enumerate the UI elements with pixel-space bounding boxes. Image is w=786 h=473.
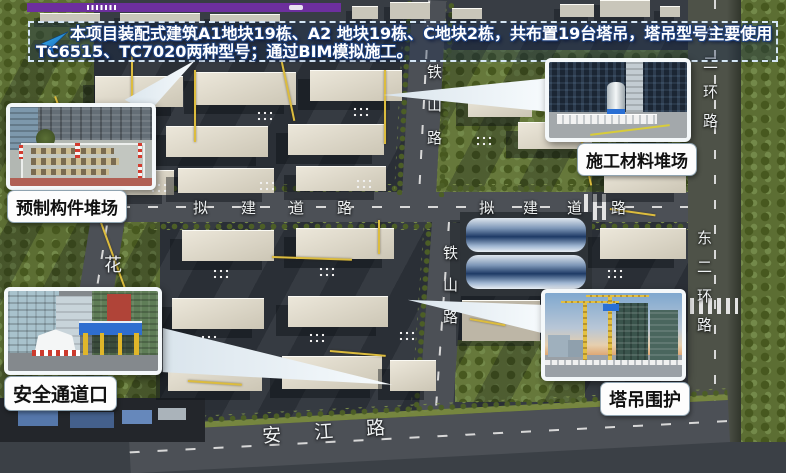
crane-leader-line [384,70,386,144]
tree-shadow-edge [727,0,741,442]
building-footprint-dots [308,332,326,344]
road-label-proposed-east: 拟建道路 [479,197,655,218]
project-description-banner: 本项目装配式建筑A1地块19栋、A2 地块19栋、C地块2栋，共布置19台塔吊，… [28,21,778,62]
building-footprint-dots [258,180,276,192]
crane-leader-line [378,220,380,254]
callout-label-safety-passage: 安全通道口 [4,376,117,411]
map-building [288,296,388,327]
photo-detail [545,360,682,365]
building-footprint-dots [355,178,373,190]
photo-detail [548,335,570,357]
photo-detail [650,310,677,362]
photo-detail [83,333,88,355]
barrel-roof [466,218,586,252]
building-roof [158,408,186,420]
photo-safety-passage [4,287,162,375]
photo-detail [626,62,643,112]
hillside-east [741,0,786,442]
building-footprint-dots [398,330,416,342]
map-building [288,124,384,155]
photo-detail [10,178,152,186]
road-label-tieshan-lower: 铁山路 [440,245,461,341]
callout-label-material-yard: 施工材料堆场 [577,143,697,176]
road-label-hua: 花 [104,251,122,277]
paper-plane-arrow-icon [40,29,70,55]
map-building [196,72,296,105]
photo-prefab-yard [6,103,156,190]
callout-label-prefab-yard: 预制构件堆场 [7,190,127,223]
road-label-east-ring-lower: 东二环路 [694,230,715,346]
photo-detail [32,350,80,356]
map-building [352,6,378,19]
road-label-proposed-west: 拟建道路 [193,197,385,218]
map-building [390,2,430,19]
building-footprint-dots [606,268,624,280]
map-building [166,126,268,157]
photo-detail [603,304,619,311]
photo-detail [138,164,142,178]
building-footprint-dots [212,268,230,280]
photo-detail [79,321,142,334]
map-building [560,4,594,17]
map-building [600,0,650,17]
progress-ticks [87,5,117,10]
photo-detail [586,295,649,298]
callout-label-crane-enclosure: 塔吊围护 [600,382,690,416]
map-building [390,360,436,391]
blue-glass-building [460,212,592,296]
photo-detail [107,294,131,321]
photo-detail [583,301,587,361]
photo-detail [19,145,23,159]
building-roof [122,410,152,424]
photo-detail [557,114,656,124]
photo-detail [31,148,113,154]
building-footprint-dots [352,106,370,118]
photo-detail [31,169,109,175]
photo-detail [568,340,584,357]
photo-detail [138,143,142,157]
map-building [600,228,686,259]
building-footprint-dots [256,110,274,122]
photo-detail [118,333,123,355]
photo-detail [134,333,139,355]
barrel-roof [466,255,586,289]
building-footprint-dots [318,266,336,278]
map-building [660,6,680,17]
building-roof [70,412,114,428]
road-label-tieshan-upper: 铁山路 [424,64,445,163]
photo-detail [616,303,648,362]
photo-detail [80,334,137,353]
map-building [182,230,274,261]
banner-text-line1: 本项目装配式建筑A1地块19栋、A2 地块19栋、C地块2栋，共布置19台塔吊，… [70,25,776,43]
photo-detail [100,333,105,355]
photo-crane-enclosure [541,289,686,381]
photo-detail [75,143,79,157]
photo-material-yard [545,58,691,142]
slide-progress-bar[interactable] [27,3,341,12]
map-building [452,8,482,19]
map-building [172,298,264,329]
photo-detail [31,158,119,164]
map-building [310,70,402,101]
progress-marker [289,5,303,10]
building-footprint-dots [475,135,493,147]
crane-leader-line [194,70,196,142]
